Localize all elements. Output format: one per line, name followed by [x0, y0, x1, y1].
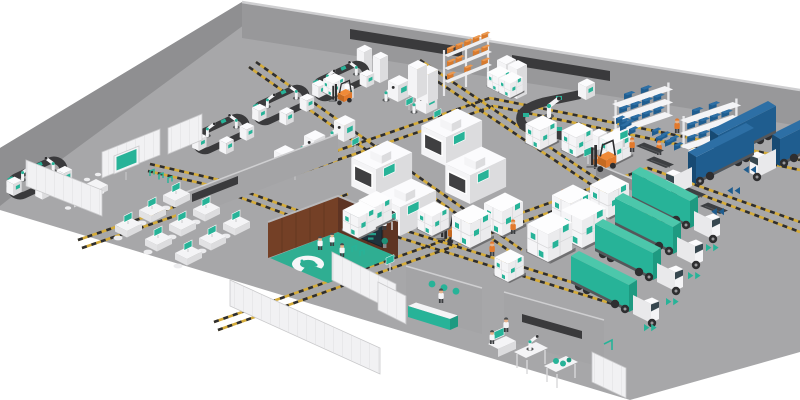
- wall-indicator-light: [429, 281, 436, 288]
- factory-illustration: Isometric 3D illustration of a smart fac…: [0, 0, 800, 400]
- wall-indicator-light: [453, 288, 460, 295]
- isometric-factory-scene: Isometric 3D illustration of a smart fac…: [0, 0, 800, 400]
